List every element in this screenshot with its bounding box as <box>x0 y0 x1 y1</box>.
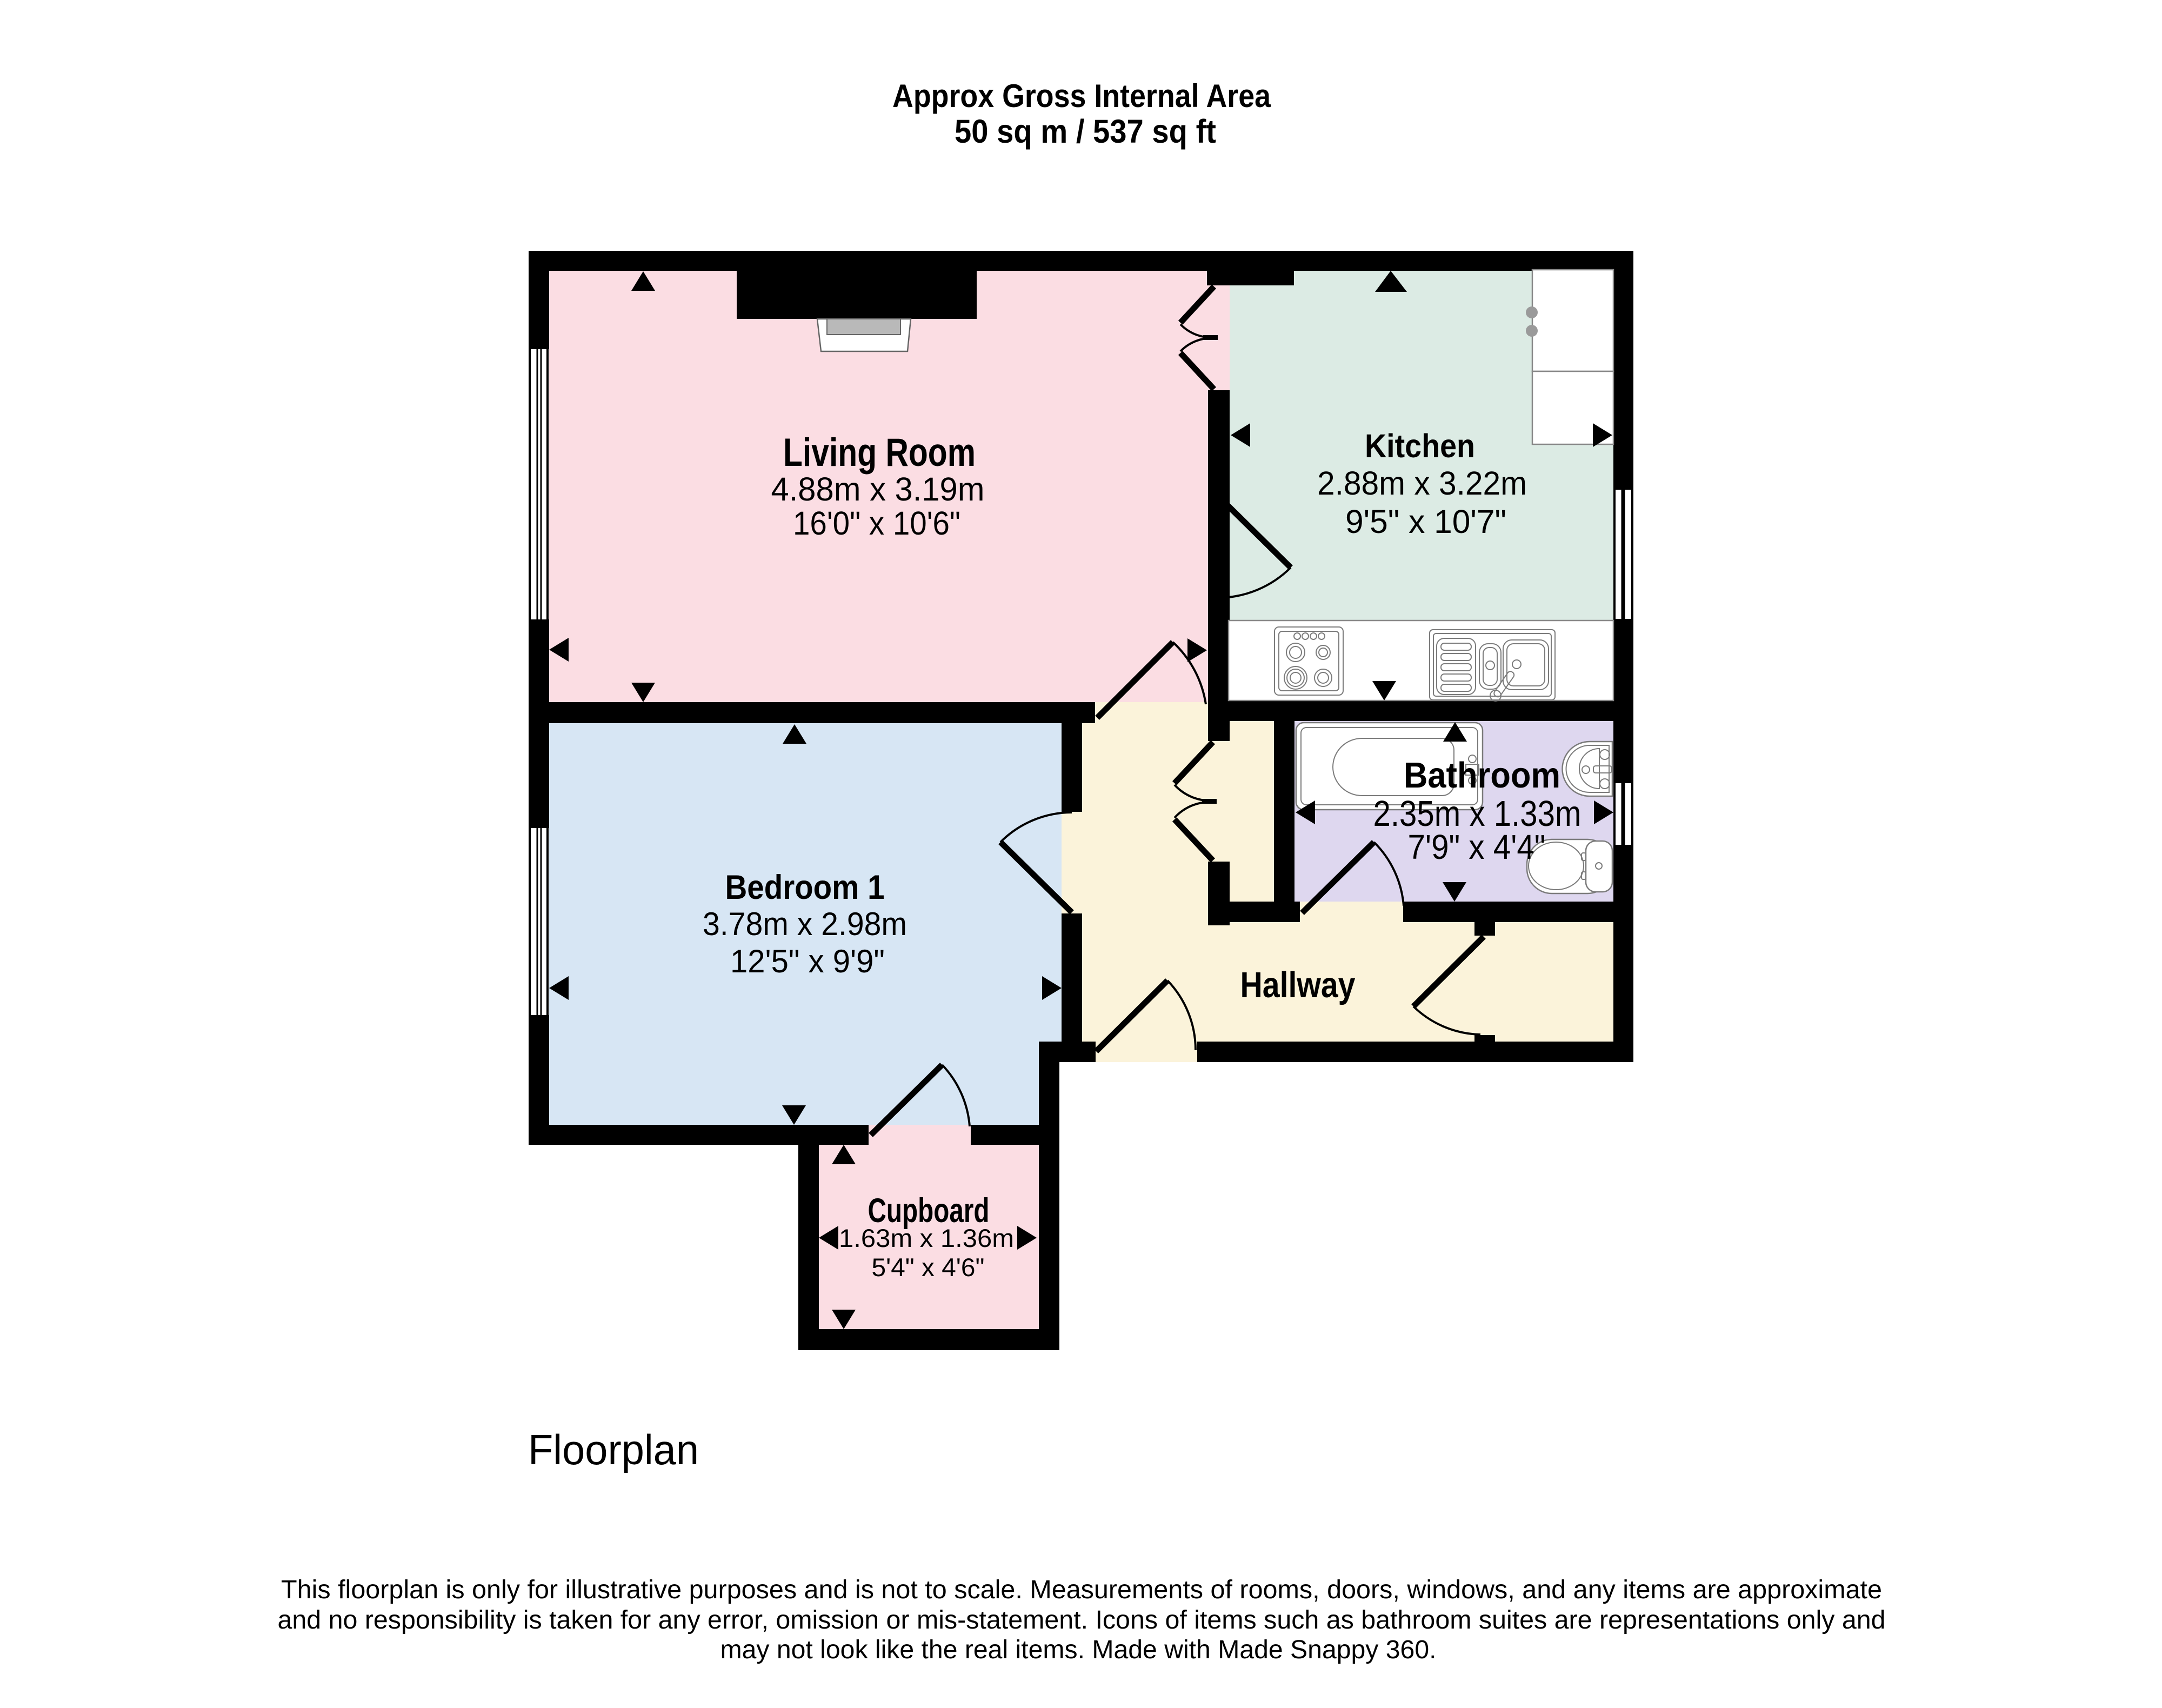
svg-text:Living Room: Living Room <box>783 431 976 475</box>
svg-text:Bathroom: Bathroom <box>1404 755 1560 796</box>
svg-text:1.63m x 1.36m: 1.63m x 1.36m <box>839 1224 1014 1252</box>
svg-text:3.78m x 2.98m: 3.78m x 2.98m <box>703 906 907 942</box>
svg-text:5'4" x 4'6": 5'4" x 4'6" <box>872 1253 985 1282</box>
svg-text:and no responsibility is taken: and no responsibility is taken for any e… <box>278 1606 1886 1634</box>
svg-text:Hallway: Hallway <box>1240 965 1356 1005</box>
svg-text:Bedroom 1: Bedroom 1 <box>725 869 885 906</box>
svg-text:4.88m x 3.19m: 4.88m x 3.19m <box>771 471 985 508</box>
svg-text:may not look like the real ite: may not look like the real items. Made w… <box>720 1636 1437 1664</box>
svg-text:50 sq m / 537 sq ft: 50 sq m / 537 sq ft <box>955 113 1216 150</box>
svg-text:2.88m x 3.22m: 2.88m x 3.22m <box>1317 465 1527 502</box>
svg-text:This floorplan is only for ill: This floorplan is only for illustrative … <box>281 1576 1882 1604</box>
svg-text:12'5" x 9'9": 12'5" x 9'9" <box>730 943 885 979</box>
svg-text:Floorplan: Floorplan <box>528 1426 699 1473</box>
svg-text:Kitchen: Kitchen <box>1365 428 1475 464</box>
svg-text:16'0" x 10'6": 16'0" x 10'6" <box>793 505 960 542</box>
svg-text:9'5" x 10'7": 9'5" x 10'7" <box>1345 503 1506 540</box>
svg-text:Approx Gross Internal Area: Approx Gross Internal Area <box>892 78 1271 114</box>
svg-text:7'9" x 4'4": 7'9" x 4'4" <box>1408 828 1546 866</box>
